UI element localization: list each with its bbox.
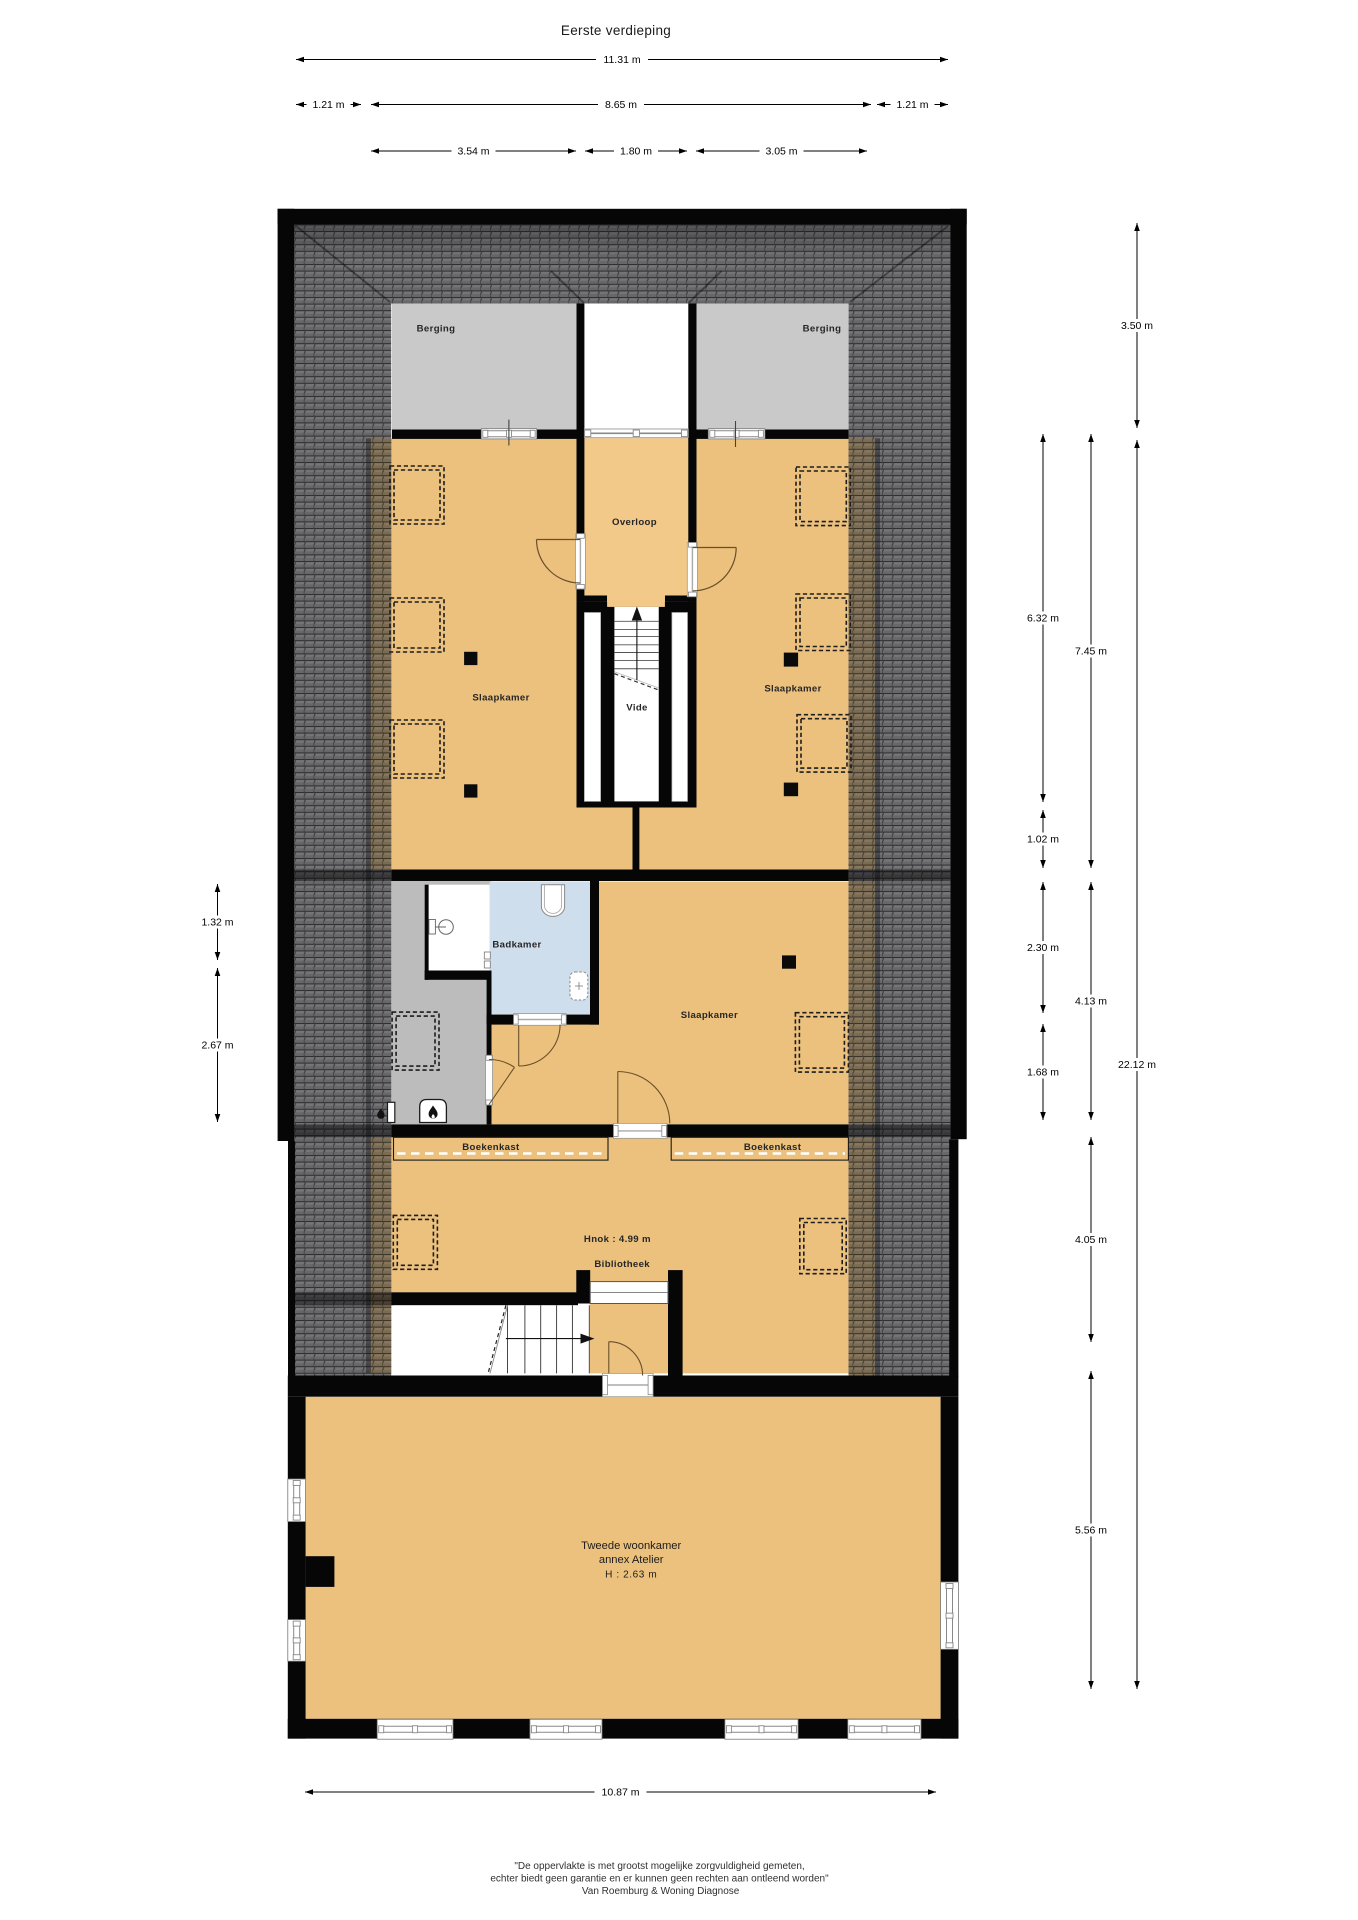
svg-text:Slaapkamer: Slaapkamer [764, 684, 821, 695]
svg-text:2.30 m: 2.30 m [1027, 942, 1059, 954]
svg-text:6.32 m: 6.32 m [1027, 613, 1059, 625]
svg-text:5.56 m: 5.56 m [1075, 1525, 1107, 1537]
svg-text:Boekenkast: Boekenkast [744, 1142, 802, 1153]
svg-text:3.05 m: 3.05 m [765, 146, 797, 158]
svg-text:4.13 m: 4.13 m [1075, 996, 1107, 1008]
svg-text:Berging: Berging [803, 324, 842, 335]
svg-text:echter biedt geen garantie en: echter biedt geen garantie en er kunnen … [490, 1874, 829, 1885]
svg-text:Eerste verdieping: Eerste verdieping [561, 23, 671, 38]
svg-text:Vide: Vide [626, 703, 648, 714]
svg-text:Berging: Berging [417, 324, 456, 335]
svg-text:Boekenkast: Boekenkast [462, 1142, 520, 1153]
svg-text:11.31 m: 11.31 m [603, 54, 640, 66]
svg-text:1.80 m: 1.80 m [620, 146, 652, 158]
svg-text:Overloop: Overloop [612, 517, 657, 528]
svg-text:3.54 m: 3.54 m [457, 146, 489, 158]
svg-text:"De oppervlakte is met grootst: "De oppervlakte is met grootst mogelijke… [514, 1861, 804, 1872]
svg-text:1.02 m: 1.02 m [1027, 834, 1059, 846]
svg-text:Bibliotheek: Bibliotheek [594, 1259, 650, 1270]
svg-text:4.05 m: 4.05 m [1075, 1234, 1107, 1246]
svg-text:Van Roemburg & Woning Diagnose: Van Roemburg & Woning Diagnose [582, 1886, 740, 1897]
svg-text:1.68 m: 1.68 m [1027, 1067, 1059, 1079]
svg-text:Slaapkamer: Slaapkamer [472, 693, 529, 704]
svg-text:Tweede woonkamer: Tweede woonkamer [581, 1540, 681, 1552]
svg-text:Slaapkamer: Slaapkamer [681, 1010, 738, 1021]
svg-text:annex Atelier: annex Atelier [599, 1554, 664, 1566]
svg-text:7.45 m: 7.45 m [1075, 646, 1107, 658]
svg-text:Hnok : 4.99 m: Hnok : 4.99 m [584, 1234, 651, 1245]
svg-text:1.21 m: 1.21 m [312, 99, 344, 111]
svg-text:1.32 m: 1.32 m [201, 917, 233, 929]
svg-text:1.21 m: 1.21 m [896, 99, 928, 111]
svg-text:8.65 m: 8.65 m [605, 99, 637, 111]
svg-text:22.12 m: 22.12 m [1118, 1059, 1156, 1071]
svg-text:2.67 m: 2.67 m [201, 1040, 233, 1052]
svg-text:3.50 m: 3.50 m [1121, 320, 1153, 332]
svg-text:Badkamer: Badkamer [492, 940, 541, 951]
svg-text:H : 2.63 m: H : 2.63 m [605, 1570, 657, 1581]
svg-text:10.87 m: 10.87 m [602, 1787, 640, 1799]
